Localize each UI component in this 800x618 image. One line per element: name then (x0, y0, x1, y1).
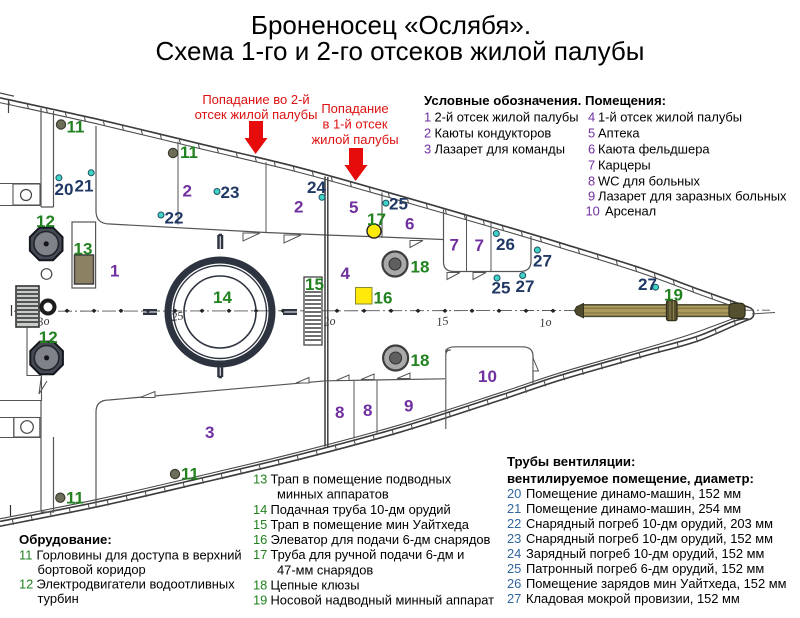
svg-text:15: 15 (435, 313, 449, 329)
svg-text:8WC для больных: 8WC для больных (588, 173, 701, 188)
svg-text:17: 17 (367, 210, 386, 229)
svg-text:6Каюта фельдшера: 6Каюта фельдшера (588, 142, 710, 157)
svg-text:22Снарядный погреб 10-дм оруди: 22Снарядный погреб 10-дм орудий, 203 мм (507, 516, 773, 531)
svg-text:бортовой коридор: бортовой коридор (38, 562, 146, 577)
svg-text:8: 8 (363, 401, 372, 420)
svg-text:2: 2 (183, 182, 192, 201)
svg-text:11: 11 (180, 143, 198, 162)
svg-text:23Снарядный погреб 10-дм оруди: 23Снарядный погреб 10-дм орудий, 152 мм (507, 531, 773, 546)
svg-text:11: 11 (181, 465, 199, 484)
svg-text:13Трап в помещение подводных: 13Трап в помещение подводных (253, 472, 452, 487)
svg-text:9Лазарет для заразных больных: 9Лазарет для заразных больных (588, 189, 787, 204)
svg-text:23: 23 (221, 183, 240, 202)
svg-text:8: 8 (335, 403, 344, 422)
svg-text:17Труба для ручной подачи 6-дм: 17Труба для ручной подачи 6-дм и (253, 547, 464, 562)
svg-text:7: 7 (475, 236, 484, 255)
svg-text:26Помещение зарядов мин Уайтхе: 26Помещение зарядов мин Уайтхеда, 152 мм (507, 576, 786, 591)
svg-text:7: 7 (450, 235, 459, 254)
svg-text:Попадание во 2-й: Попадание во 2-й (202, 92, 309, 107)
svg-text:Попадание: Попадание (321, 101, 388, 116)
svg-text:6: 6 (405, 215, 414, 234)
svg-text:12Электродвигатели водоотливны: 12Электродвигатели водоотливных (19, 577, 235, 592)
svg-text:19: 19 (664, 286, 683, 305)
svg-text:41-й отсек жилой палубы: 41-й отсек жилой палубы (588, 110, 742, 125)
svg-text:12: 12 (36, 212, 55, 231)
svg-text:5: 5 (349, 198, 358, 217)
svg-text:19Носовой надводный минный апп: 19Носовой надводный минный аппарат (253, 593, 494, 608)
svg-text:1o: 1o (538, 314, 552, 330)
svg-text:27: 27 (638, 275, 657, 294)
svg-text:24Зарядный погреб 10-дм орудий: 24Зарядный погреб 10-дм орудий, 152 мм (507, 546, 764, 561)
svg-text:турбин: турбин (38, 591, 79, 606)
svg-text:3: 3 (205, 423, 214, 442)
svg-text:11: 11 (66, 489, 84, 508)
svg-text:12-й отсек жилой палубы: 12-й отсек жилой палубы (424, 110, 579, 125)
svg-text:16Элеватор для подачи 6-дм сна: 16Элеватор для подачи 6-дм снарядов (253, 532, 491, 547)
svg-text:4: 4 (341, 264, 351, 283)
svg-text:13: 13 (74, 239, 93, 258)
svg-text:25Патронный погреб 6-дм орудий: 25Патронный погреб 6-дм орудий, 152 мм (507, 561, 764, 576)
svg-text:10: 10 (478, 367, 497, 386)
svg-text:Трубы вентиляции:: Трубы вентиляции: (507, 454, 635, 469)
svg-text:2: 2 (294, 198, 303, 217)
svg-text:27: 27 (533, 252, 552, 271)
svg-text:3Лазарет для команды: 3Лазарет для команды (424, 142, 565, 157)
svg-text:11Горловины для доступа в верх: 11Горловины для доступа в верхний (19, 548, 242, 563)
svg-text:25: 25 (492, 279, 511, 298)
svg-text:14: 14 (213, 288, 232, 307)
svg-text:Схема 1-го и 2-го отсеков жило: Схема 1-го и 2-го отсеков жилой палубы (156, 36, 645, 66)
svg-text:16: 16 (374, 289, 393, 308)
svg-text:9: 9 (404, 397, 413, 416)
svg-text:Условные обозначения. Помещени: Условные обозначения. Помещения: (424, 93, 666, 108)
svg-text:14Подачная труба 10-дм орудий: 14Подачная труба 10-дм орудий (253, 502, 451, 517)
svg-text:отсек жилой палубы: отсек жилой палубы (195, 107, 318, 122)
svg-text:10Арсенал: 10Арсенал (586, 204, 657, 219)
svg-text:25: 25 (389, 195, 408, 214)
svg-text:26: 26 (496, 235, 515, 254)
svg-text:21Помещение динамо-машин, 254: 21Помещение динамо-машин, 254 мм (507, 501, 741, 516)
svg-text:12: 12 (39, 328, 58, 347)
svg-text:вентилируемое помещение, диаме: вентилируемое помещение, диаметр: (507, 471, 754, 486)
svg-text:47-мм снарядов: 47-мм снарядов (277, 562, 373, 577)
svg-text:27Кладовая мокрой провизии, 15: 27Кладовая мокрой провизии, 152 мм (507, 591, 740, 606)
svg-text:в 1-й отсек: в 1-й отсек (322, 117, 387, 132)
svg-text:20: 20 (55, 180, 74, 199)
svg-text:27: 27 (516, 277, 535, 296)
svg-text:1: 1 (110, 262, 119, 281)
svg-text:21: 21 (75, 177, 94, 196)
svg-text:Обрудование:: Обрудование: (19, 532, 112, 547)
svg-text:22: 22 (165, 209, 184, 228)
svg-text:жилой палубы: жилой палубы (311, 132, 398, 147)
svg-text:18: 18 (411, 258, 430, 277)
svg-text:2Каюты кондукторов: 2Каюты кондукторов (424, 126, 551, 141)
svg-text:18: 18 (411, 351, 430, 370)
svg-text:минных аппаратов: минных аппаратов (277, 487, 389, 502)
svg-text:24: 24 (307, 178, 326, 197)
svg-text:20Помещение динамо-машин, 152: 20Помещение динамо-машин, 152 мм (507, 486, 741, 501)
svg-text:15: 15 (305, 275, 324, 294)
svg-text:25: 25 (170, 308, 184, 324)
svg-text:15Трап в помещение мин Уайтхед: 15Трап в помещение мин Уайтхеда (253, 517, 470, 532)
svg-text:7Карцеры: 7Карцеры (588, 158, 651, 173)
svg-text:11: 11 (67, 118, 85, 137)
